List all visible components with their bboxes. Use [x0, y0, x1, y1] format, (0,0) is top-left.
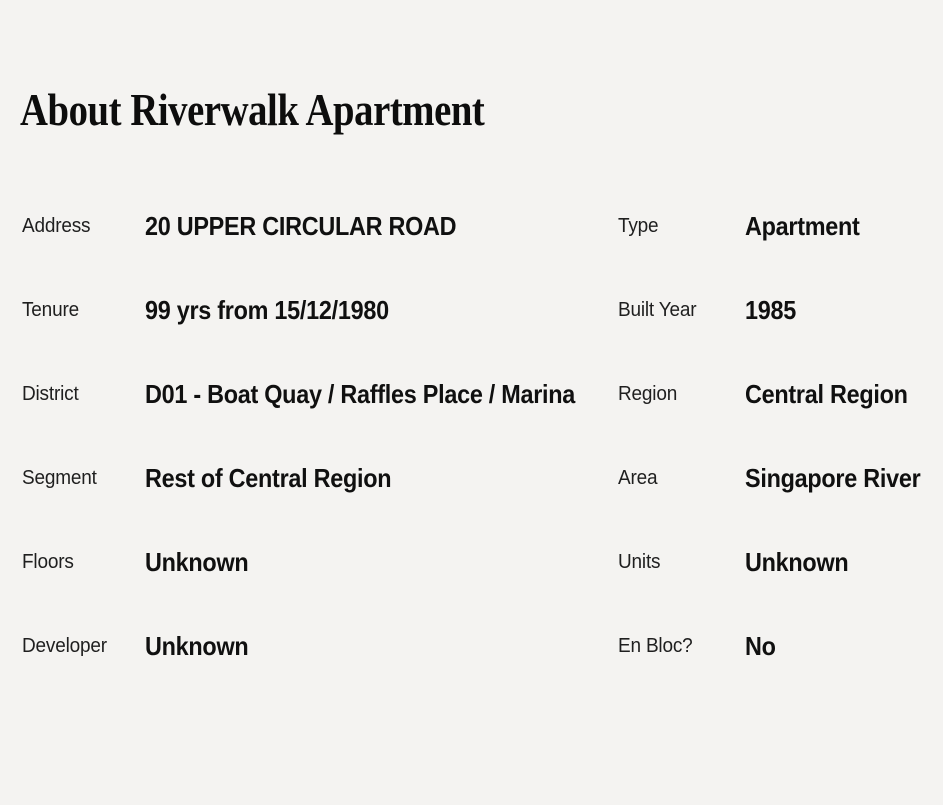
segment-label: Segment	[22, 467, 139, 490]
units-value: Unknown	[745, 547, 920, 578]
address-label: Address	[22, 215, 139, 238]
developer-value: Unknown	[145, 631, 571, 662]
en-bloc-label: En Bloc?	[618, 635, 739, 658]
en-bloc-value: No	[745, 631, 920, 662]
floors-value: Unknown	[145, 547, 571, 578]
area-value: Singapore River	[745, 463, 920, 494]
region-value: Central Region	[745, 379, 920, 410]
units-label: Units	[618, 551, 739, 574]
developer-label: Developer	[22, 635, 139, 658]
segment-value: Rest of Central Region	[145, 463, 571, 494]
section-title: About Riverwalk Apartment	[20, 88, 814, 133]
address-value: 20 UPPER CIRCULAR ROAD	[145, 211, 571, 242]
district-value: D01 - Boat Quay / Raffles Place / Marina	[145, 379, 571, 410]
about-property-section: About Riverwalk Apartment Address 20 UPP…	[0, 88, 943, 805]
built-year-value: 1985	[745, 295, 920, 326]
tenure-value: 99 yrs from 15/12/1980	[145, 295, 571, 326]
built-year-label: Built Year	[618, 299, 739, 322]
area-label: Area	[618, 467, 739, 490]
region-label: Region	[618, 383, 739, 406]
type-label: Type	[618, 215, 739, 238]
property-details-grid: Address 20 UPPER CIRCULAR ROAD Type Apar…	[0, 184, 943, 688]
type-value: Apartment	[745, 211, 920, 242]
district-label: District	[22, 383, 139, 406]
floors-label: Floors	[22, 551, 139, 574]
tenure-label: Tenure	[22, 299, 139, 322]
